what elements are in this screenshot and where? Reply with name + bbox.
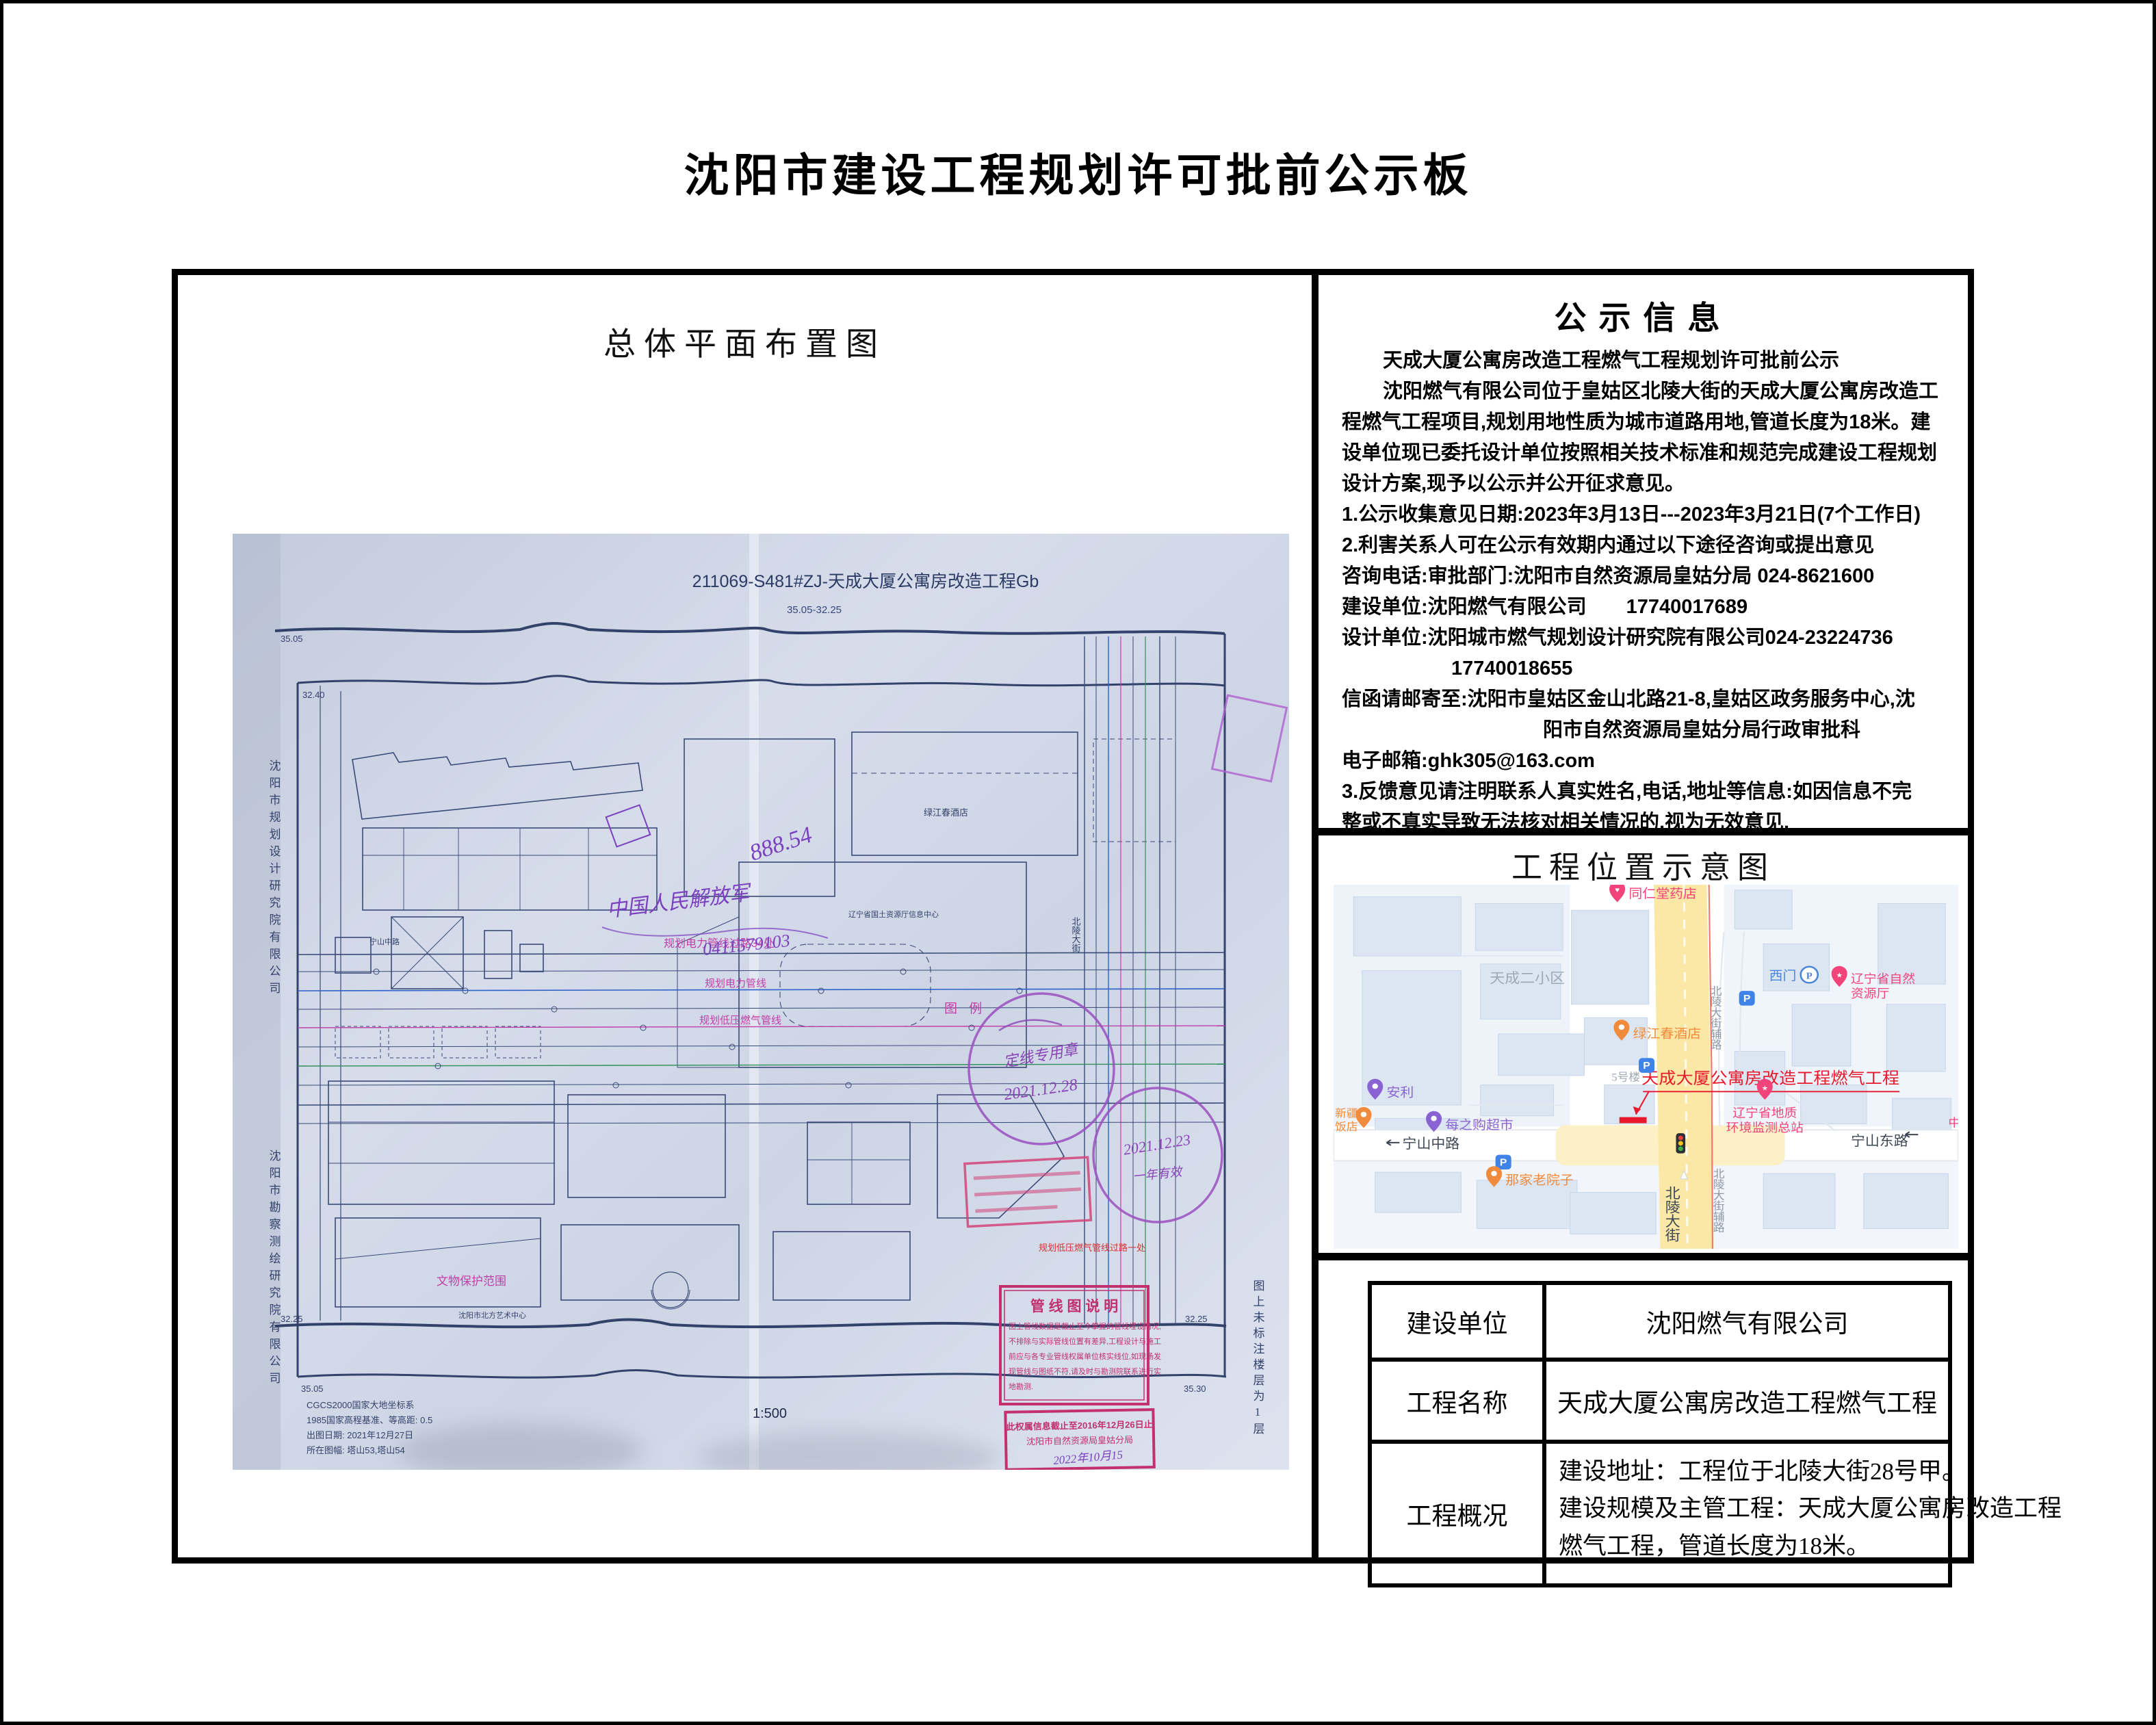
project-table: 建设单位 沈阳燃气有限公司 工程名称 天成大厦公寓房改造工程燃气工程 工程概况 … (1368, 1281, 1952, 1587)
notice-line: 电子邮箱:ghk305@163.com (1342, 746, 1951, 777)
project-marker (1620, 1117, 1647, 1124)
row-value: 天成大厦公寓房改造工程燃气工程 (1544, 1360, 1950, 1442)
road-label: 宁山东路 (1851, 1133, 1908, 1148)
location-section: 工程位置示意图 (1319, 835, 1968, 1253)
svg-text:图上管线数据是截止至今掌握的管线埋设情况,: 图上管线数据是截止至今掌握的管线埋设情况, (1009, 1321, 1161, 1331)
row-label: 建设单位 (1370, 1283, 1544, 1360)
notice-line: 2.利害关系人可在公示有效期内通过以下途径咨询或提出意见 (1342, 530, 1951, 561)
blueprint-subtitle: 35.05-32.25 (787, 604, 842, 616)
svg-text:每之购超市: 每之购超市 (1445, 1118, 1513, 1132)
svg-text:辽宁省地质: 辽宁省地质 (1732, 1106, 1797, 1119)
notice-line: 1.公示收集意见日期:2023年3月13日---2023年3月21日(7个工作日… (1342, 500, 1951, 530)
svg-text:P: P (1806, 971, 1813, 981)
table-row: 工程名称 天成大厦公寓房改造工程燃气工程 (1370, 1360, 1950, 1442)
org-name-2: 沈阳市勘察测绘研究院有限公司 (268, 1150, 281, 1389)
svg-text:资源厅: 资源厅 (1851, 987, 1889, 1000)
svg-text:辽宁省自然: 辽宁省自然 (1851, 972, 1915, 985)
project-table-section: 建设单位 沈阳燃气有限公司 工程名称 天成大厦公寓房改造工程燃气工程 工程概况 … (1319, 1260, 1968, 1557)
svg-text:辽宁省国土资源厅信息中心: 辽宁省国土资源厅信息中心 (848, 909, 939, 919)
svg-text:现管线与图纸不符,请及时与勘测院联系进行实: 现管线与图纸不符,请及时与勘测院联系进行实 (1009, 1366, 1161, 1376)
notice-line: 17740018655 (1342, 653, 1951, 684)
notice-body: 天成大厦公寓房改造工程燃气工程规划许可批前公示 沈阳燃气有限公司位于皇姑区北陵大… (1342, 346, 1951, 828)
notice-line: 整或不真实导致无法核对相关情况的,视为无效意见. (1342, 807, 1951, 828)
svg-text:沈阳市自然资源局皇姑分局: 沈阳市自然资源局皇姑分局 (1026, 1435, 1133, 1447)
svg-text:地勘测.: 地勘测. (1009, 1382, 1033, 1391)
overview-line: 建设规模及主管工程：天成大厦公寓房改造工程 (1559, 1490, 1936, 1527)
svg-text:所在图幅: 塔山53,塔山54: 所在图幅: 塔山53,塔山54 (307, 1445, 405, 1455)
site-plan-panel: 总体平面布置图 (178, 275, 1312, 1557)
notice-line: 设单位现已委托设计单位按照相关技术标准和规范完成建设工程规划 (1342, 438, 1951, 469)
svg-text:35.05: 35.05 (281, 634, 303, 644)
blueprint-title: 211069-S481#ZJ-天成大厦公寓房改造工程Gb (692, 572, 1039, 591)
svg-text:32.25: 32.25 (1185, 1314, 1208, 1324)
notice-line: 天成大厦公寓房改造工程燃气工程规划许可批前公示 (1342, 346, 1951, 376)
svg-text:35.30: 35.30 (1184, 1384, 1206, 1394)
notice-line: 沈阳燃气有限公司位于皇姑区北陵大街的天成大厦公寓房改造工 (1342, 376, 1951, 407)
area-label: 天成二小区 (1490, 970, 1565, 986)
location-map: 天成大厦公寓房改造工程燃气工程 天成二小区 5号楼 宁山中路 宁山东路 (1334, 885, 1958, 1249)
svg-text:新疆: 新疆 (1335, 1108, 1358, 1119)
area-label: 5号楼 (1611, 1072, 1640, 1083)
notice-line: 咨询电话:审批部门:沈阳市自然资源局皇姑分局 024-8621600 (1342, 561, 1951, 592)
main-content-box: 总体平面布置图 (172, 269, 1974, 1564)
road-label-vertical: 北陵大街 (1663, 1185, 1680, 1242)
svg-text:规划低压燃气管线过路一处: 规划低压燃气管线过路一处 (1039, 1243, 1145, 1253)
svg-text:规划电力管线: 规划电力管线 (705, 978, 766, 989)
table-row: 建设单位 沈阳燃气有限公司 (1370, 1283, 1950, 1360)
svg-text:P: P (1643, 1060, 1650, 1071)
svg-text:不排除与实际管线位置有差异,工程设计与施工: 不排除与实际管线位置有差异,工程设计与施工 (1009, 1336, 1161, 1346)
vertical-divider (1312, 275, 1319, 1557)
svg-text:文物保护范围: 文物保护范围 (437, 1275, 506, 1288)
road-label: 宁山中路 (1403, 1136, 1460, 1151)
overview-line: 建设地址：工程位于北陵大街28号甲。 (1559, 1453, 1936, 1490)
road-label-vertical: 北陵大街辅路 (1709, 985, 1722, 1050)
svg-text:绿江春酒店: 绿江春酒店 (924, 807, 968, 818)
notice-board-page: 沈阳市建设工程规划许可批前公示板 总体平面布置图 (0, 0, 2156, 1725)
svg-text:北陵大街: 北陵大街 (1071, 917, 1081, 952)
svg-text:饭店: 饭店 (1335, 1121, 1358, 1133)
notice-line: 信函请邮寄至:沈阳市皇姑区金山北路21-8,皇姑区政务服务中心,沈 (1342, 684, 1951, 715)
location-map-svg: 天成大厦公寓房改造工程燃气工程 天成二小区 5号楼 宁山中路 宁山东路 (1334, 885, 1958, 1249)
horizontal-divider-1 (1319, 828, 1968, 835)
svg-text:P: P (1743, 993, 1750, 1004)
notice-line: 3.反馈意见请注明联系人真实姓名,电话,地址等信息:如因信息不完 (1342, 777, 1951, 807)
table-row: 工程概况 建设地址：工程位于北陵大街28号甲。 建设规模及主管工程：天成大厦公寓… (1370, 1442, 1950, 1585)
svg-text:管 线 图 说 明: 管 线 图 说 明 (1030, 1298, 1118, 1314)
traffic-light-icon (1676, 1133, 1685, 1153)
floors-note: 图上未标注楼层为1层 (1251, 1280, 1265, 1438)
poi-partial: 中 (1948, 1117, 1958, 1129)
poi-ximen: 西门 P (1769, 967, 1818, 983)
row-label: 工程名称 (1370, 1360, 1544, 1442)
svg-text:宁山中路: 宁山中路 (369, 937, 400, 946)
row-label: 工程概况 (1370, 1442, 1544, 1585)
svg-text:32.25: 32.25 (281, 1314, 303, 1324)
svg-text:沈阳市北方艺术中心: 沈阳市北方艺术中心 (458, 1310, 526, 1320)
blueprint-photo: 211069-S481#ZJ-天成大厦公寓房改造工程Gb 35.05-32.25… (233, 534, 1289, 1470)
overview-cell: 建设地址：工程位于北陵大街28号甲。 建设规模及主管工程：天成大厦公寓房改造工程… (1544, 1442, 1950, 1585)
map-scale: 1:500 (753, 1406, 787, 1421)
svg-text:1985国家高程基准、等高距: 0.5: 1985国家高程基准、等高距: 0.5 (307, 1415, 432, 1425)
svg-text:绿江春酒店: 绿江春酒店 (1633, 1026, 1701, 1041)
svg-text:★: ★ (1836, 972, 1843, 980)
svg-text:规划低压燃气管线: 规划低压燃气管线 (699, 1014, 781, 1026)
svg-text:那家老院子: 那家老院子 (1505, 1173, 1573, 1187)
svg-text:★: ★ (1762, 1085, 1768, 1093)
blueprint-svg: 211069-S481#ZJ-天成大厦公寓房改造工程Gb 35.05-32.25… (233, 534, 1289, 1470)
notice-line: 建设单位:沈阳燃气有限公司 17740017689 (1342, 592, 1951, 623)
notice-line: 程燃气工程项目,规划用地性质为城市道路用地,管道长度为18米。建 (1342, 407, 1951, 438)
right-column: 公示信息 天成大厦公寓房改造工程燃气工程规划许可批前公示 沈阳燃气有限公司位于皇… (1319, 275, 1968, 1557)
svg-text:前应与各专业管线权属单位核实线位,如现场发: 前应与各专业管线权属单位核实线位,如现场发 (1009, 1351, 1161, 1361)
poi-label: 同仁堂药店 (1628, 887, 1696, 901)
org-name-1: 沈阳市规划设计研究院有限公司 (268, 760, 281, 999)
svg-text:出图日期: 2021年12月27日: 出图日期: 2021年12月27日 (307, 1430, 413, 1440)
site-plan-heading: 总体平面布置图 (178, 317, 1312, 365)
horizontal-divider-2 (1319, 1253, 1968, 1260)
notice-heading: 公示信息 (1319, 291, 1968, 339)
location-heading: 工程位置示意图 (1319, 842, 1968, 887)
svg-text:♥: ♥ (1615, 886, 1620, 894)
row-value: 沈阳燃气有限公司 (1544, 1283, 1950, 1360)
svg-text:安利: 安利 (1386, 1086, 1414, 1100)
svg-text:35.05: 35.05 (301, 1384, 324, 1394)
notice-line: 阳市自然资源局皇姑分局行政审批科 (1342, 715, 1951, 746)
svg-text:图 例: 图 例 (944, 1001, 986, 1016)
svg-text:P: P (1500, 1157, 1507, 1168)
page-title: 沈阳市建设工程规划许可批前公示板 (3, 139, 2153, 205)
svg-text:CGCS2000国家大地坐标系: CGCS2000国家大地坐标系 (307, 1400, 414, 1410)
notice-line: 设计方案,现予以公示并公开征求意见。 (1342, 469, 1951, 500)
public-notice-section: 公示信息 天成大厦公寓房改造工程燃气工程规划许可批前公示 沈阳燃气有限公司位于皇… (1319, 275, 1968, 828)
poi-label: 西门 (1769, 969, 1797, 983)
overview-line: 燃气工程，管道长度为18米。 (1559, 1528, 1936, 1565)
svg-text:环境监测总站: 环境监测总站 (1726, 1121, 1804, 1134)
notice-line: 设计单位:沈阳城市燃气规划设计研究院有限公司024-23224736 (1342, 623, 1951, 653)
svg-text:32.40: 32.40 (302, 690, 325, 700)
road-label-vertical: 北陵大街辅路 (1711, 1168, 1725, 1232)
